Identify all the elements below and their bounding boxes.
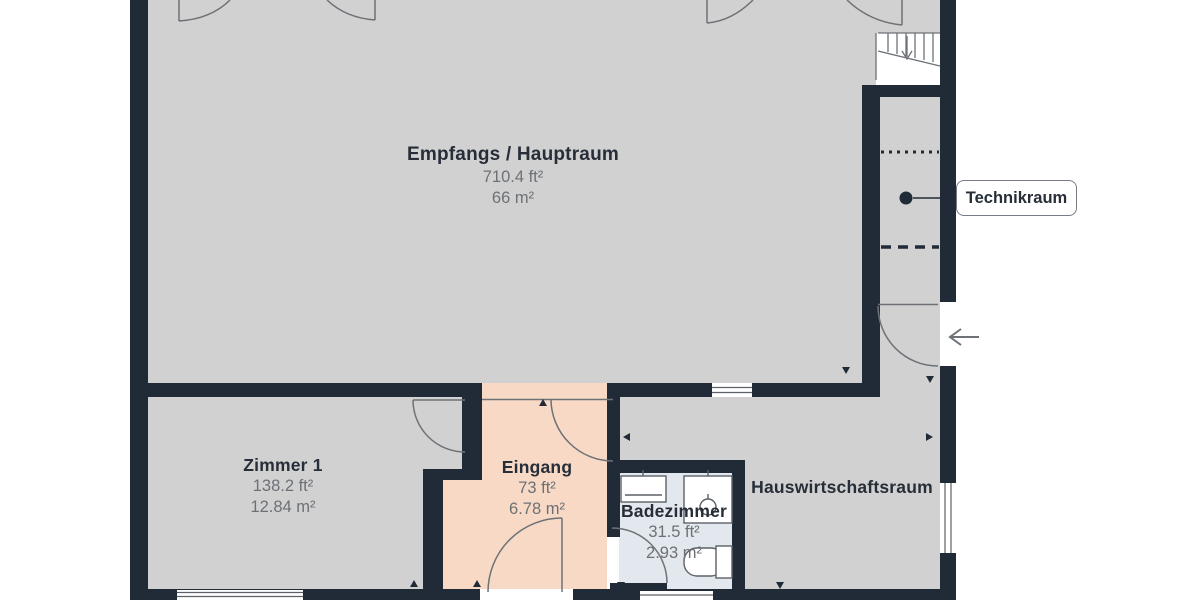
wall-zimmer1-east bbox=[423, 480, 443, 589]
wall-right-upper bbox=[940, 0, 956, 302]
wall-stairs-bottom bbox=[862, 85, 942, 97]
floor-plan: Empfangs / Hauptraum 710.4 ft² 66 m² Zim… bbox=[0, 0, 1200, 600]
room-area-ft: 73 ft² bbox=[457, 478, 617, 499]
room-name: Zimmer 1 bbox=[183, 454, 383, 476]
room-area-ft: 138.2 ft² bbox=[183, 476, 383, 497]
wall-mid-east bbox=[752, 383, 880, 397]
wall-left-exterior bbox=[130, 0, 148, 600]
wall-bad-top bbox=[607, 460, 745, 473]
entrance-opening-south bbox=[480, 589, 573, 600]
technikraum-callout[interactable]: Technikraum bbox=[956, 180, 1077, 216]
wall-corridor-left bbox=[862, 97, 880, 383]
room-label-hauptraum: Empfangs / Hauptraum 710.4 ft² 66 m² bbox=[343, 143, 683, 209]
floor-corridor-strip bbox=[880, 383, 940, 397]
room-label-zimmer1: Zimmer 1 138.2 ft² 12.84 m² bbox=[183, 454, 383, 518]
room-area-ft: 31.5 ft² bbox=[592, 522, 756, 543]
wall-mid-center bbox=[607, 383, 712, 397]
window-zimmer1-south bbox=[177, 590, 303, 600]
floor-staircase bbox=[876, 33, 940, 85]
technikraum-callout-label: Technikraum bbox=[966, 189, 1067, 208]
window-bad-south bbox=[640, 591, 713, 600]
room-label-hauswirtschaftsraum: Hauswirtschaftsraum bbox=[712, 476, 972, 498]
entry-arrow-icon bbox=[950, 329, 979, 345]
room-name: Badezimmer bbox=[592, 500, 756, 522]
room-name: Hauswirtschaftsraum bbox=[712, 476, 972, 498]
room-area-m: 2.93 m² bbox=[592, 543, 756, 564]
room-name: Eingang bbox=[457, 456, 617, 478]
room-area-ft: 710.4 ft² bbox=[343, 167, 683, 188]
room-area-m: 12.84 m² bbox=[183, 497, 383, 518]
wall-bad-door-leaf bbox=[610, 583, 667, 591]
wall-mid-west bbox=[148, 383, 482, 397]
room-label-badezimmer: Badezimmer 31.5 ft² 2.93 m² bbox=[592, 500, 756, 564]
room-name: Empfangs / Hauptraum bbox=[343, 143, 683, 167]
room-area-m: 66 m² bbox=[343, 188, 683, 209]
window-mid-wall bbox=[712, 384, 752, 396]
